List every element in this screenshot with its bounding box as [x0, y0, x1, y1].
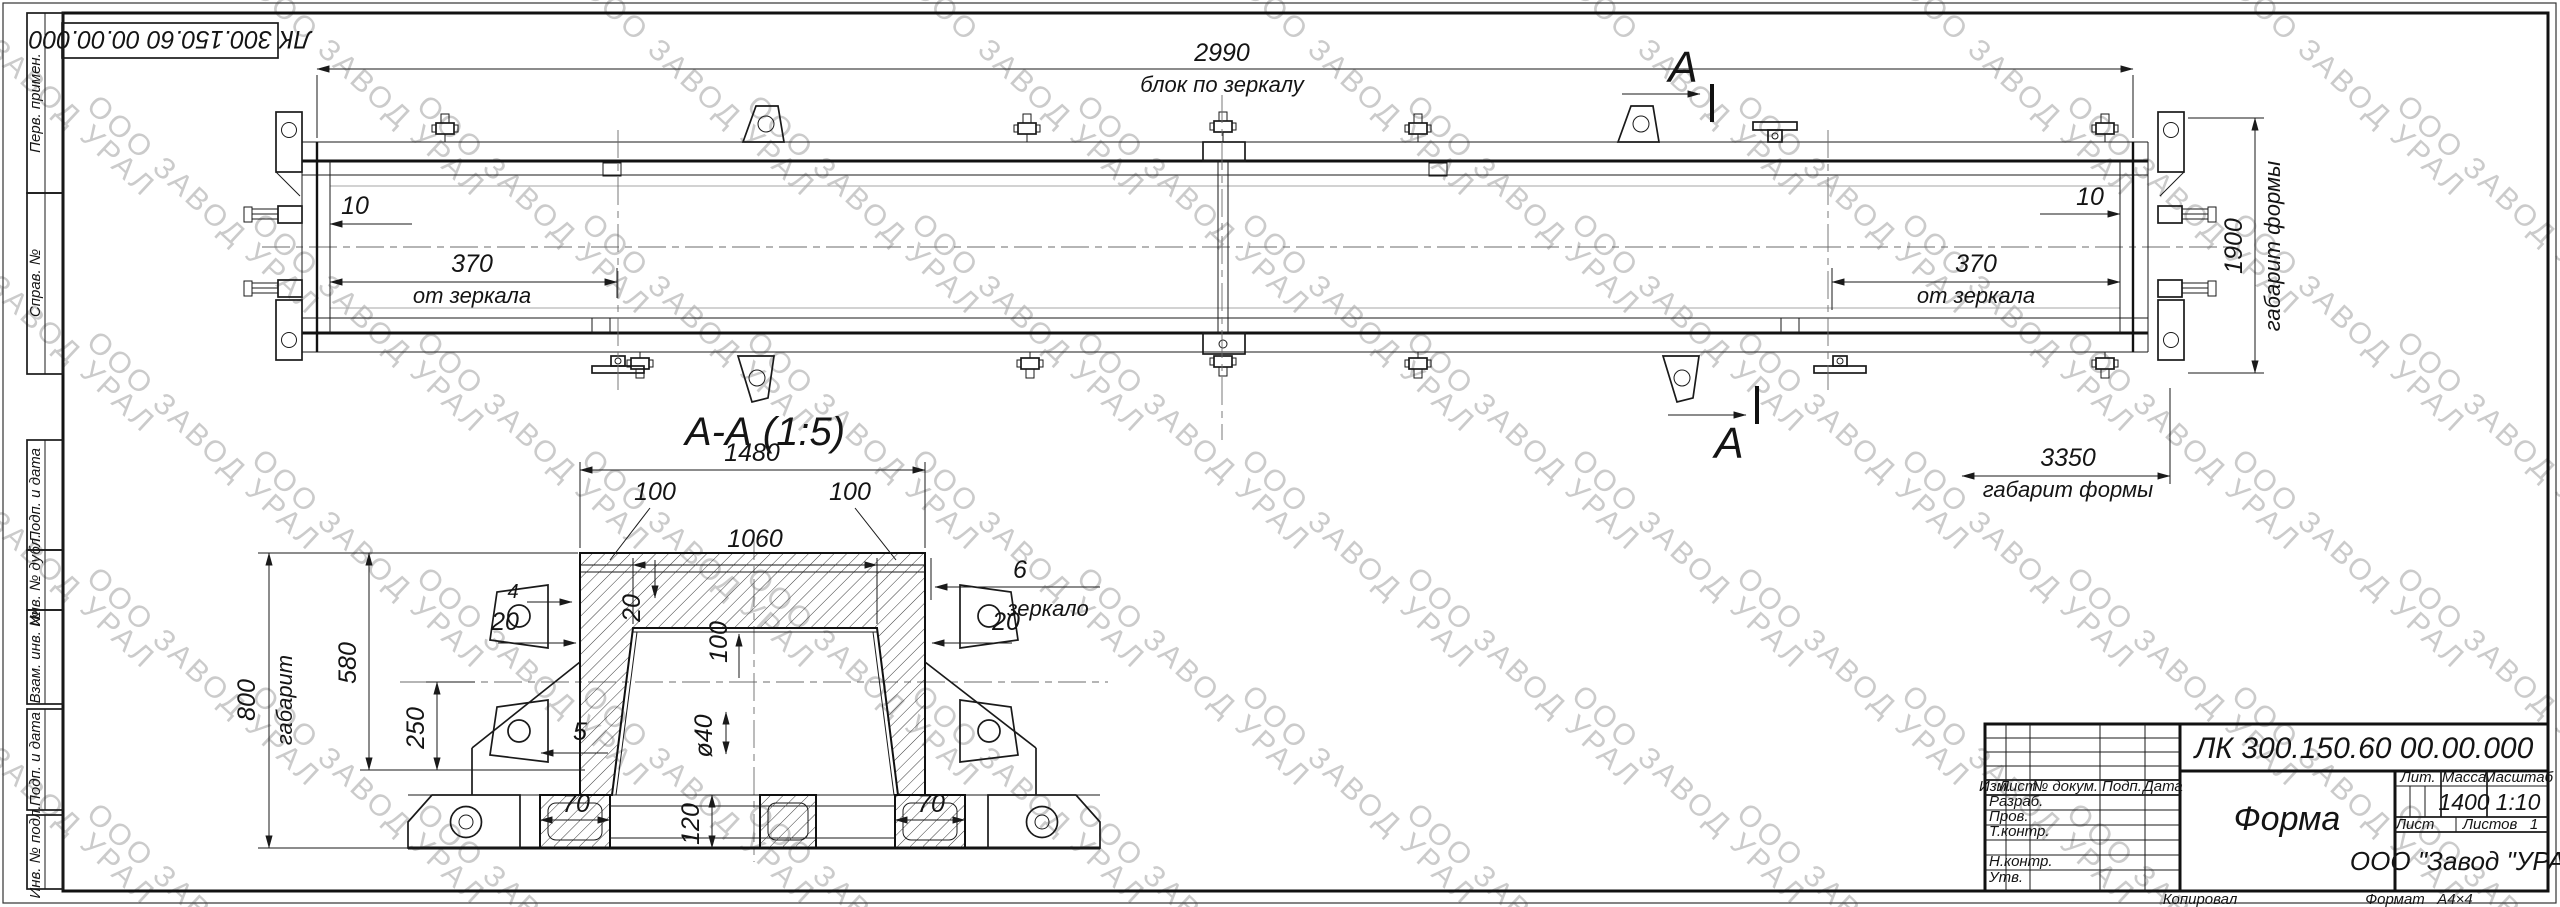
watermark-text: ООО ЗАВОД УРАЛ [2390, 325, 2560, 558]
copied-label: Копировал [2163, 891, 2238, 907]
watermark-text: ООО ЗАВОД УРАЛ [410, 325, 656, 558]
watermark-text: ООО ЗАВОД УРАЛ [1565, 207, 1811, 440]
svg-text:1480: 1480 [724, 439, 780, 467]
svg-text:120: 120 [677, 803, 705, 845]
svg-text:20: 20 [490, 608, 519, 636]
svg-text:А: А [1711, 419, 1743, 468]
svg-text:Масштаб: Масштаб [2483, 769, 2554, 786]
svg-text:100: 100 [705, 621, 733, 663]
watermark-text: ООО ЗАВОД УРАЛ [2225, 443, 2471, 676]
watermark-text: ООО ЗАВОД УРАЛ [0, 207, 162, 440]
format-label: Формат [2365, 891, 2425, 907]
dim-lip: 4 [507, 581, 572, 603]
dim-depth-100: 100 [705, 621, 739, 678]
watermark-text: ООО ЗАВОД УРАЛ [2390, 89, 2560, 322]
watermark-text: ООО ЗАВОД УРАЛ [0, 443, 162, 676]
margin-label: Справ. № [27, 249, 44, 317]
dim-wall-left: 10 [330, 192, 412, 224]
dim-wall-right-20: 20 [932, 608, 1020, 643]
watermark-text: ООО ЗАВОД УРАЛ [1400, 325, 1646, 558]
svg-text:5: 5 [573, 718, 587, 746]
tab [1781, 318, 1799, 333]
svg-text:100: 100 [634, 478, 676, 506]
svg-text:250: 250 [402, 707, 430, 750]
svg-text:А: А [1665, 43, 1697, 92]
svg-text:1900: 1900 [2220, 218, 2248, 274]
svg-text:70: 70 [562, 790, 590, 818]
watermark-text: ООО ЗАВОД УРАЛ [1070, 89, 1316, 322]
section-mark-bottom: А [1668, 386, 1757, 468]
watermark-text: ООО ЗАВОД УРАЛ [1070, 561, 1316, 794]
svg-text:800: 800 [233, 679, 261, 721]
corner-stamp-text: ЛК 300.150.60 00.00.000 [29, 25, 313, 53]
margin-column: Перв. примен. Справ. № Подп. и дата Инв.… [27, 13, 63, 899]
svg-text:70: 70 [917, 790, 945, 818]
svg-text:Лит.: Лит. [2399, 769, 2435, 786]
watermark-text: ООО ЗАВОД УРАЛ [245, 443, 491, 676]
watermark-text: ООО ЗАВОД УРАЛ [575, 0, 821, 204]
company-name: ООО "Завод "УРАЛ" [2350, 846, 2560, 876]
watermark-text: ООО ЗАВОД УРАЛ [740, 89, 986, 322]
watermark-text: ООО ЗАВОД УРАЛ [1235, 443, 1481, 676]
watermark-text: ООО ЗАВОД УРАЛ [1730, 325, 1976, 558]
dim-inner-580: 580 [334, 553, 369, 770]
svg-text:Дата: Дата [2141, 778, 2183, 795]
watermark-text: ООО ЗАВОД УРАЛ [905, 443, 1151, 676]
watermark-text: ООО ЗАВОД УРАЛ [1400, 561, 1646, 794]
mass-value: 1400 [2438, 789, 2489, 815]
svg-text:4: 4 [507, 581, 518, 603]
watermark-text: ООО ЗАВОД УРАЛ [905, 0, 1151, 204]
watermark-text: ООО ЗАВОД УРАЛ [1400, 89, 1646, 322]
dim-hole-40: ø40 [690, 712, 726, 758]
svg-text:6: 6 [1013, 556, 1027, 584]
watermark-text: ООО ЗАВОД УРАЛ [1895, 207, 2141, 440]
watermark-text: ООО ЗАВОД УРАЛ [1235, 0, 1481, 204]
svg-text:100: 100 [829, 478, 871, 506]
drawing-sheet: ООО ЗАВОД УРАЛООО ЗАВОД УРАЛООО ЗАВОД УР… [0, 0, 2560, 907]
svg-text:ø40: ø40 [690, 714, 718, 757]
svg-text:Утв.: Утв. [1988, 869, 2023, 886]
svg-text:2990: 2990 [1193, 39, 1250, 67]
svg-text:Подп.: Подп. [2102, 778, 2142, 795]
watermark-text: ООО ЗАВОД УРАЛ [1070, 325, 1316, 558]
svg-text:Лист: Лист [2395, 816, 2435, 833]
lifting-lugs-top [743, 106, 1659, 142]
svg-text:Н.контр.: Н.контр. [1989, 853, 2053, 870]
svg-text:Т.контр.: Т.контр. [1989, 823, 2050, 840]
tab [592, 318, 610, 333]
doc-number: ЛК 300.150.60 00.00.000 [2193, 732, 2534, 765]
watermark-text: ООО ЗАВОД УРАЛ [1730, 561, 1976, 794]
svg-text:1060: 1060 [727, 525, 783, 553]
svg-text:габарит формы: габарит формы [1983, 477, 2153, 502]
watermark-text: ООО ЗАВОД УРАЛ [905, 207, 1151, 440]
watermark-text: ООО ЗАВОД УРАЛ [1565, 679, 1811, 907]
end-bracket-left-top [276, 112, 302, 196]
watermark-text: ООО ЗАВОД УРАЛ [1565, 443, 1811, 676]
svg-text:от зеркала: от зеркала [1917, 283, 2035, 308]
svg-text:20: 20 [618, 594, 646, 623]
sheets-value: 1 [2530, 816, 2538, 833]
watermark-text: ООО ЗАВОД УРАЛ [1895, 0, 2141, 204]
watermark-text: ООО ЗАВОД УРАЛ [1565, 0, 1811, 204]
svg-text:Масса: Масса [2442, 769, 2486, 786]
svg-text:20: 20 [991, 608, 1020, 636]
clamp-bolts-top [432, 112, 2118, 142]
svg-text:габарит формы: габарит формы [2260, 161, 2285, 331]
dim-block-length: 2990 блок по зеркалу [317, 39, 2133, 138]
drawing-canvas: ООО ЗАВОД УРАЛООО ЗАВОД УРАЛООО ЗАВОД УР… [0, 0, 2560, 907]
corner-stamp: ЛК 300.150.60 00.00.000 [29, 23, 313, 58]
svg-text:370: 370 [1955, 250, 1997, 278]
watermark-text: ООО ЗАВОД УРАЛ [575, 207, 821, 440]
watermark-text: ООО ЗАВОД УРАЛ [1235, 679, 1481, 907]
margin-label: Инв. № подл. [27, 805, 44, 898]
svg-text:габарит: габарит [272, 655, 297, 745]
format-value: А4×4 [2436, 891, 2472, 907]
end-bolt-right-2 [2158, 280, 2216, 297]
end-bracket-right-bottom [2158, 300, 2184, 360]
svg-text:10: 10 [341, 192, 369, 220]
svg-text:блок по зеркалу: блок по зеркалу [1140, 72, 1305, 97]
margin-box: Подп. и дата [27, 440, 63, 550]
margin-label: Перв. примен. [27, 53, 44, 153]
svg-text:Листов: Листов [2462, 816, 2518, 833]
svg-text:370: 370 [451, 250, 493, 278]
part-name: Форма [2234, 800, 2341, 838]
watermark-text: ООО ЗАВОД УРАЛ [245, 207, 491, 440]
scale-value: 1:10 [2496, 789, 2541, 815]
svg-text:580: 580 [334, 642, 362, 684]
watermark-text: ООО ЗАВОД УРАЛ [1235, 207, 1481, 440]
margin-label: Подп. и дата [27, 448, 44, 542]
svg-text:от зеркала: от зеркала [413, 283, 531, 308]
svg-text:3350: 3350 [2040, 444, 2096, 472]
margin-box: Взам. инв. № [27, 610, 63, 704]
svg-text:10: 10 [2076, 183, 2104, 211]
lifting-lugs-bottom [738, 356, 1699, 402]
margin-label: Подп. и дата [27, 712, 44, 806]
margin-label: Взам. инв. № [27, 611, 44, 704]
